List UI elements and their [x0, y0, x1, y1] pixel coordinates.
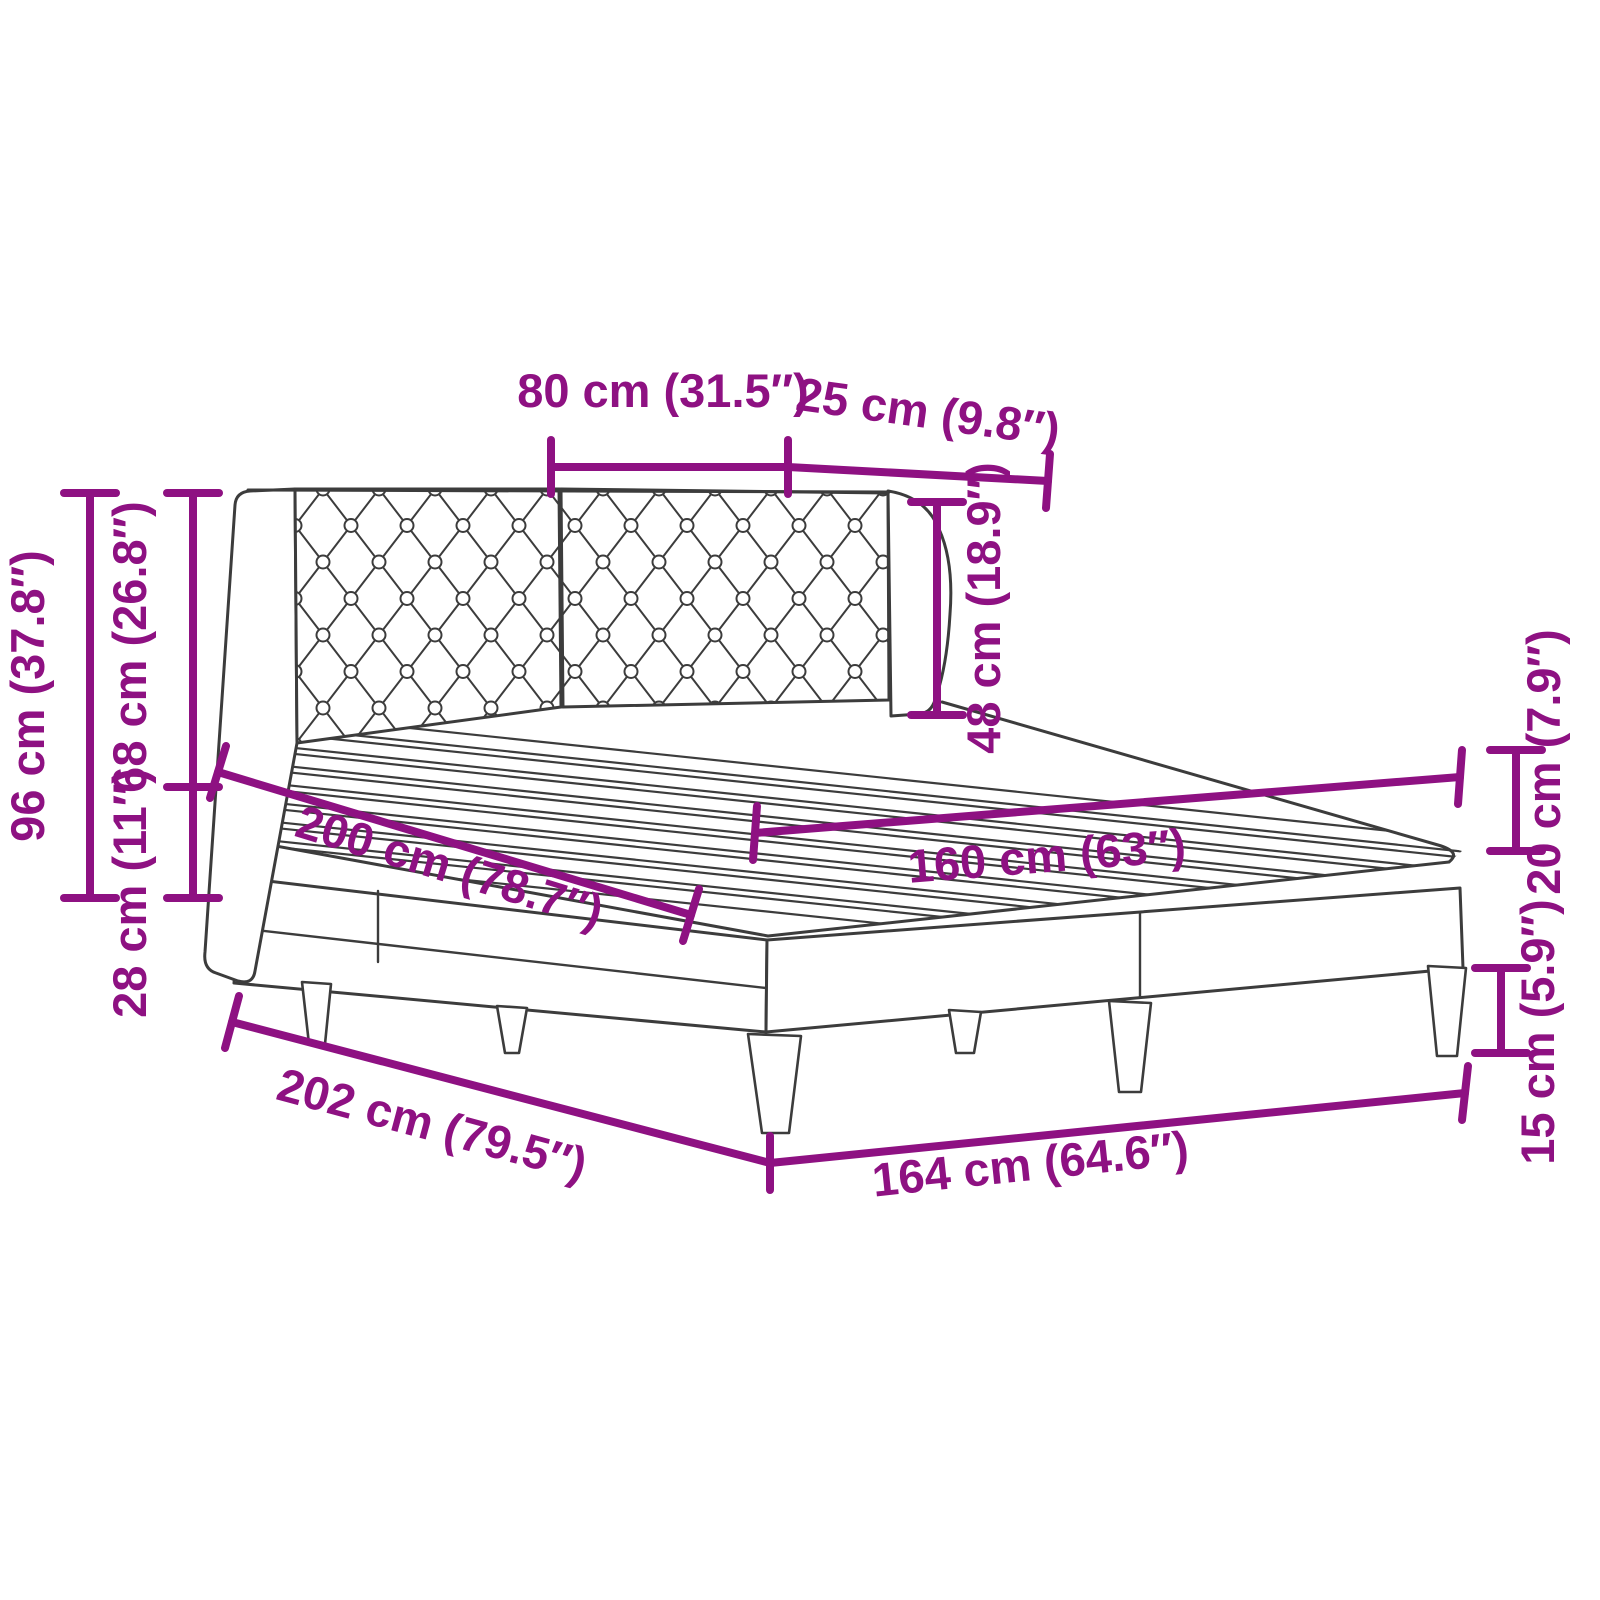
- leg-right-corner: [1428, 966, 1466, 1056]
- headboard-top-edge: [248, 490, 889, 492]
- dim-label-96cm: 96 cm (37.8″): [1, 550, 54, 842]
- bed-line-art: [205, 489, 1500, 1133]
- leg-head-left: [302, 982, 331, 1044]
- leg-mid-left: [497, 1006, 527, 1053]
- dim-headboard-wing-width: 25 cm (9.8″): [788, 367, 1063, 508]
- dim-label-15cm: 15 cm (5.9″): [1511, 899, 1564, 1164]
- dim-leg-height: 15 cm (5.9″): [1475, 899, 1564, 1164]
- leg-far-side: [949, 1010, 981, 1053]
- leg-front-corner: [748, 1034, 801, 1133]
- dim-label-28cm: 28 cm (11″): [103, 768, 156, 1018]
- dim-label-20cm: 20 cm (7.9″): [1517, 629, 1570, 894]
- leg-mid-right: [1109, 1001, 1151, 1092]
- dim-label-80cm: 80 cm (31.5″): [517, 364, 809, 417]
- dim-box-height: 20 cm (7.9″): [1490, 629, 1570, 894]
- dim-label-25cm: 25 cm (9.8″): [793, 367, 1063, 456]
- headboard-right-wing: [888, 491, 951, 716]
- bed-dimension-diagram: 80 cm (31.5″) 25 cm (9.8″) 48 cm (18.9″)…: [0, 0, 1600, 1600]
- dim-total-height: 96 cm (37.8″): [1, 493, 116, 898]
- dimension-diagram-canvas: 80 cm (31.5″) 25 cm (9.8″) 48 cm (18.9″)…: [0, 0, 1600, 1600]
- headboard-panel-right: [561, 489, 889, 707]
- headboard-center-seam: [560, 489, 562, 707]
- headboard-panel-left: [295, 489, 561, 743]
- dim-label-68cm: 68 cm (26.8″): [103, 501, 156, 793]
- dim-headboard-and-base-height: 68 cm (26.8″) 28 cm (11″): [103, 493, 219, 1018]
- dim-headboard-panel-width: 80 cm (31.5″): [517, 364, 809, 494]
- dim-label-48cm: 48 cm (18.9″): [957, 462, 1010, 754]
